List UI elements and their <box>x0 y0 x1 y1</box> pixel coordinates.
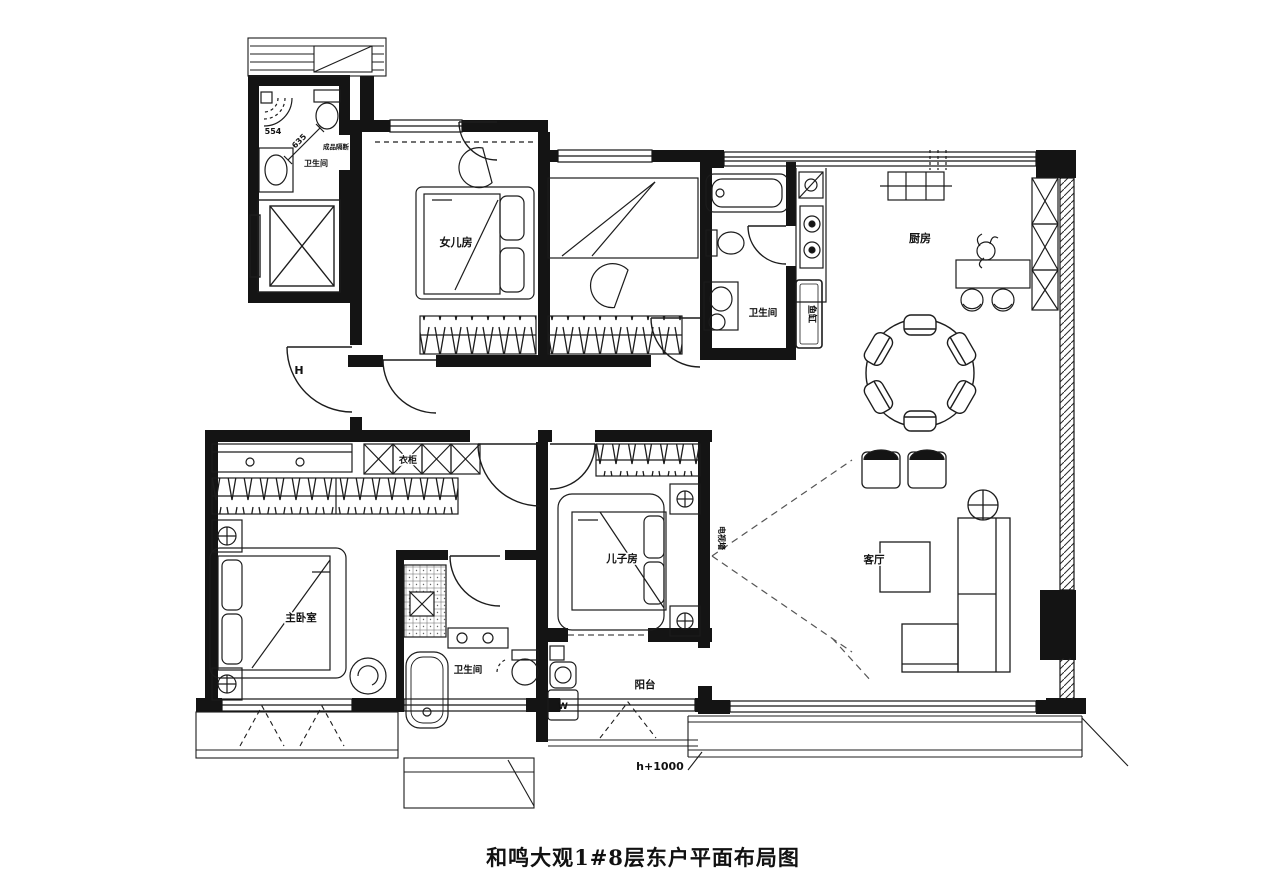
label-kitchen: 厨房 <box>909 231 931 245</box>
second-bedroom-furniture <box>548 178 698 354</box>
daughter-room-door <box>383 360 436 413</box>
range-hood <box>880 172 952 200</box>
wardrobe <box>420 316 536 354</box>
son-room-door <box>550 444 595 489</box>
wardrobe <box>548 316 682 354</box>
master-bath-fixtures <box>404 565 538 728</box>
desk-chair <box>584 257 628 309</box>
window-master-bay <box>222 699 352 711</box>
sofa <box>902 518 1010 672</box>
side-table <box>968 490 998 520</box>
bed <box>416 187 534 299</box>
label-master-bedroom: 主卧室 <box>285 611 317 624</box>
label-washer-mark: W <box>558 702 568 712</box>
tv-sightlines <box>712 460 872 682</box>
floor-plan: 女儿房 卫生间 554 635 成品隔断 卫生间 鱼缸 厨房 H 衣柜 主卧室 … <box>0 0 1286 890</box>
closet-cabinets <box>364 444 480 474</box>
pouf <box>350 658 386 694</box>
window-bath-bottom <box>404 699 528 711</box>
hall-bath-door <box>748 226 786 264</box>
label-guest-bath: 卫生间 <box>304 158 328 168</box>
label-lobby-mark: H <box>294 364 303 377</box>
nightstand <box>670 484 700 514</box>
window-living-bottom <box>730 701 1036 712</box>
label-son-room: 儿子房 <box>605 552 638 565</box>
label-hall-bath: 卫生间 <box>749 307 778 319</box>
label-master-bath: 卫生间 <box>454 664 483 676</box>
window-kitchen-top <box>724 152 1036 166</box>
label-dim-554: 554 <box>265 127 282 136</box>
wardrobe <box>596 444 700 476</box>
hall-bathroom-fixtures <box>704 174 788 330</box>
kitchen-fixtures <box>796 150 1058 311</box>
label-dim-635: 635 <box>290 132 308 150</box>
master-suite-door <box>478 444 540 506</box>
tall-cabinets <box>1032 178 1058 310</box>
floor-plan-canvas: 女儿房 卫生间 554 635 成品隔断 卫生间 鱼缸 厨房 H 衣柜 主卧室 … <box>0 0 1286 890</box>
laundry-sink <box>550 662 576 688</box>
shower <box>404 565 446 637</box>
label-fish-tank: 鱼缸 <box>806 305 818 323</box>
entry-door <box>287 347 352 412</box>
toilet <box>314 90 340 129</box>
plant <box>977 234 998 268</box>
label-sill-height: h+1000 <box>636 760 684 773</box>
bathtub <box>406 652 448 728</box>
master-bath-door <box>450 556 500 606</box>
label-balcony: 阳台 <box>635 678 656 691</box>
label-living-room: 客厅 <box>863 553 885 566</box>
window-bedroom2-top <box>558 150 652 162</box>
sink <box>259 148 293 192</box>
bathtub <box>706 174 788 212</box>
kitchen-sink <box>799 172 823 198</box>
master-bay-window <box>196 706 398 758</box>
window-daughter-top <box>390 120 462 132</box>
son-room-furniture <box>558 444 700 636</box>
corner-shower <box>261 92 292 126</box>
equipment-platform <box>404 758 534 808</box>
toilet <box>497 650 538 685</box>
armchair <box>908 450 946 488</box>
label-daughter-room: 女儿房 <box>440 235 473 249</box>
label-wardrobe-cabinet: 衣柜 <box>399 454 417 466</box>
label-partition: 成品隔断 <box>323 142 350 151</box>
bed <box>548 178 698 258</box>
closet-hanger-rail <box>212 478 458 514</box>
master-bed <box>210 548 346 678</box>
vanity <box>448 628 508 648</box>
dining-set <box>862 315 978 431</box>
terrace <box>688 716 1128 770</box>
cooktop <box>800 206 823 268</box>
label-tv-wall: 电视墙 <box>717 526 727 550</box>
island-counter <box>956 260 1030 311</box>
elevator <box>250 200 340 292</box>
plan-title: 和鸣大观1#8层东户平面布局图 <box>0 842 1286 872</box>
armchair <box>862 450 900 488</box>
dresser-shelf <box>212 444 352 472</box>
chair <box>454 146 492 192</box>
coffee-table <box>880 542 930 592</box>
window-balcony-bottom <box>560 699 695 711</box>
